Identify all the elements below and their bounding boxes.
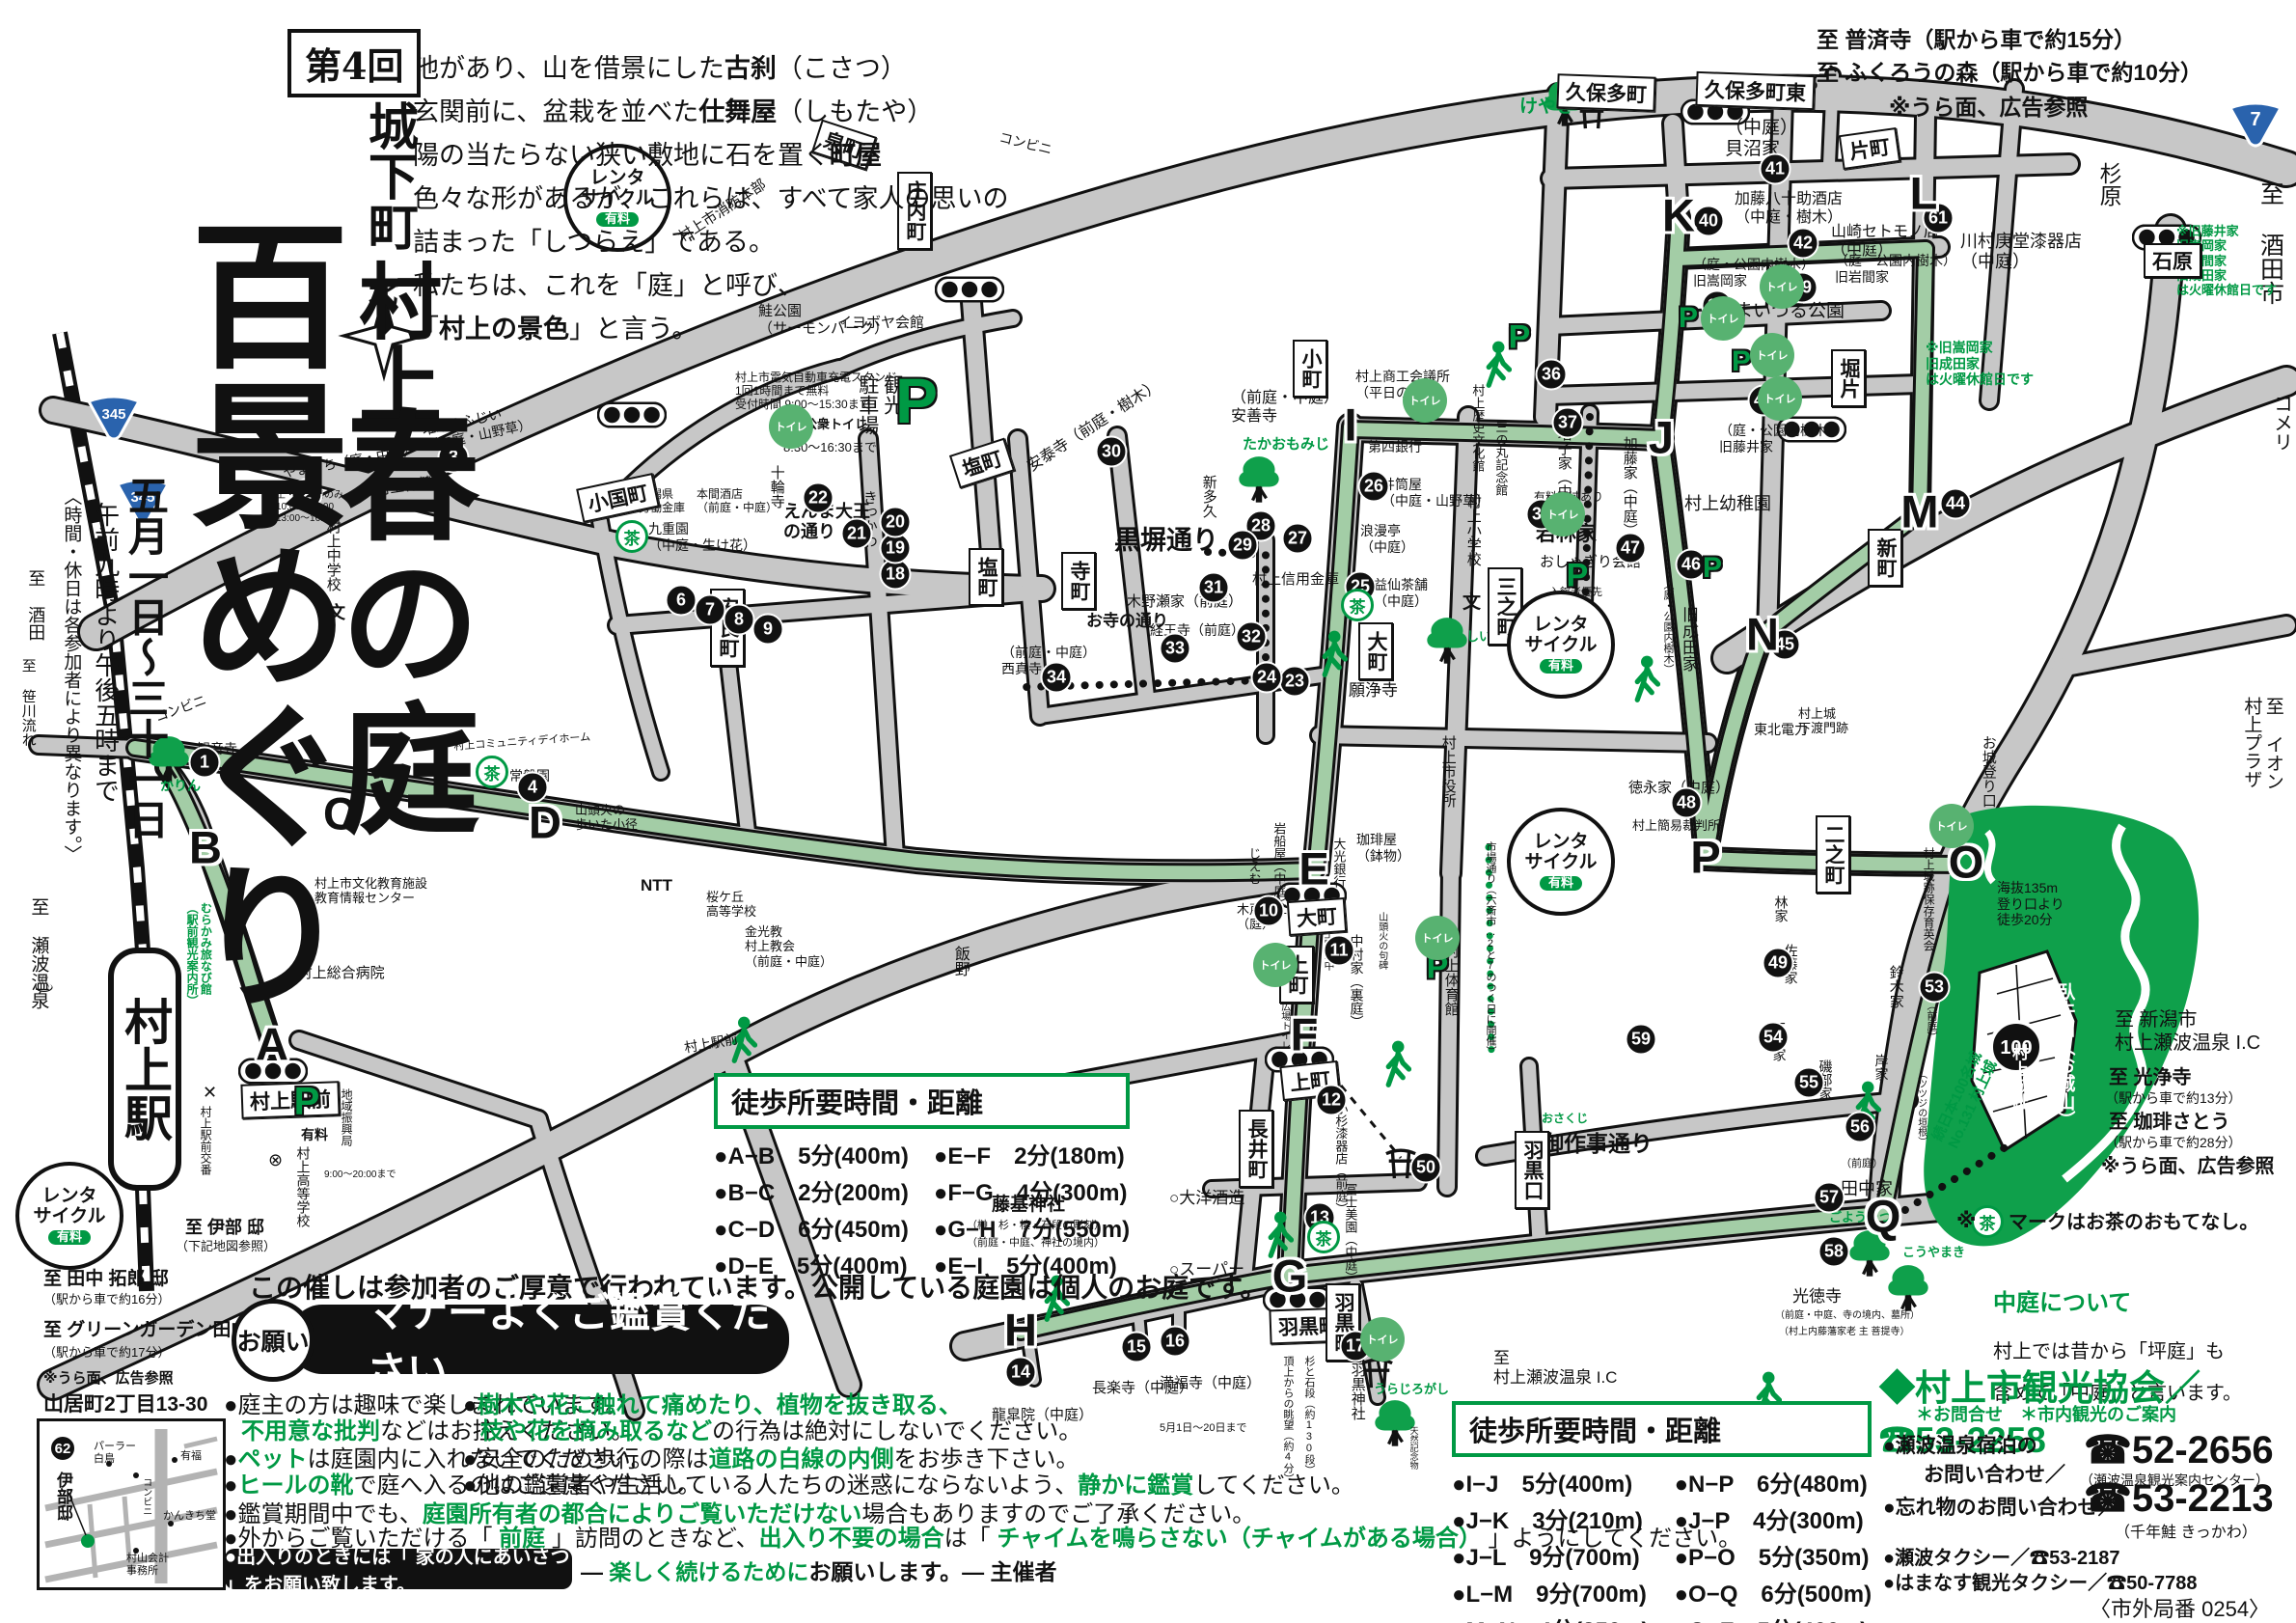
request-badge: お願い	[232, 1299, 314, 1382]
walker-icon	[1489, 342, 1509, 386]
traffic-light-icon	[239, 1059, 307, 1084]
title-hours: 午前九時より午後五時まで	[91, 502, 121, 803]
senami-taxi: ●瀬波タクシー／☎53-2187	[1883, 1542, 2119, 1570]
natural-monument-tree-icon	[1375, 1400, 1414, 1446]
walker-icon	[1759, 1372, 1779, 1417]
traffic-light-icon	[1681, 100, 1749, 124]
senami-onsen-contact: ●瀬波温泉宿泊の お問い合わせ／	[1883, 1430, 2065, 1488]
title-castle-town: 城下町	[359, 100, 418, 251]
lost-items-phone: ☎53-2213	[2084, 1476, 2274, 1521]
inset-label: 村山会計 事務所	[126, 1553, 169, 1578]
greeting-bar: ●出入りのときには「 家の人にあいさつ 」をお願い致します。	[225, 1549, 572, 1589]
tea-legend-prefix: ※	[1956, 1210, 1976, 1234]
inset-label: かんきち堂	[163, 1510, 216, 1523]
area-code: 〈市外局番 0254〉	[2090, 1592, 2270, 1623]
castle-mountain	[1924, 806, 2199, 1246]
murakami-spring-garden-tour-map: 3453457100 至 普済寺（駅から車で約15分）至 ふくろうの森（駅から車…	[0, 0, 2296, 1623]
castle-100-badge: 100	[1991, 1022, 2041, 1072]
contact-block: ◆村上市観光協会／☎53-2258 ＊お問合せ ＊市内観光のご案内 ●瀬波温泉宿…	[1872, 1349, 2286, 1600]
walker-icon	[1388, 1041, 1408, 1086]
title-murakami: 村上	[343, 259, 441, 425]
traffic-light-icon	[1266, 1048, 1333, 1072]
event-edition-badge: 第4回	[287, 29, 421, 97]
senami-onsen-phone: ☎52-2656	[2084, 1428, 2274, 1472]
tea-legend-text: マークはお茶のおもてなし。	[2009, 1212, 2258, 1235]
inset-label: 伊部邸	[53, 1472, 72, 1521]
natural-monument-tree-icon	[1239, 456, 1278, 503]
inset-site-number: 62	[49, 1435, 76, 1462]
traffic-light-icon	[1264, 1288, 1331, 1312]
murakami-station: 村上駅	[108, 948, 181, 1191]
title-main: 百景めぐり	[164, 214, 351, 1015]
inset-label: 有福	[180, 1450, 202, 1463]
natural-monument-tree-icon	[1849, 1230, 1889, 1277]
traffic-light-icon	[2133, 226, 2200, 250]
natural-monument-tree-icon	[1888, 1265, 1927, 1311]
manner-banner: マナーよくご鑑賞ください。	[289, 1305, 789, 1374]
title-dates: 五月一日～三十一日	[122, 475, 170, 839]
traffic-light-icon	[598, 403, 666, 427]
traffic-light-icon	[936, 278, 1003, 302]
inset-label: コンビニ	[140, 1477, 151, 1516]
walker-icon	[1637, 656, 1657, 701]
svg-text:345: 345	[101, 406, 125, 423]
lost-items-note: （千年鮭 きっかわ）	[2115, 1519, 2257, 1542]
contact-subtitle: ＊お問合せ ＊市内観光のご案内	[1916, 1401, 2176, 1426]
traffic-light-icon	[1278, 884, 1346, 908]
hamanasu-taxi: ●はまなす観光タクシー／☎50-7788	[1883, 1567, 2197, 1595]
svg-text:100: 100	[2000, 1037, 2032, 1059]
inset-label: パーラー 白鳥	[94, 1441, 136, 1466]
title-note: 〈時間・休日は各参加者により異なります。〉	[60, 487, 81, 864]
traffic-light-icon	[1778, 418, 1845, 442]
svg-text:7: 7	[2250, 109, 2260, 130]
ibe-residence-inset-map: 伊部邸パーラー 白鳥有福コンビニかんきち堂村山会計 事務所62	[37, 1418, 226, 1590]
